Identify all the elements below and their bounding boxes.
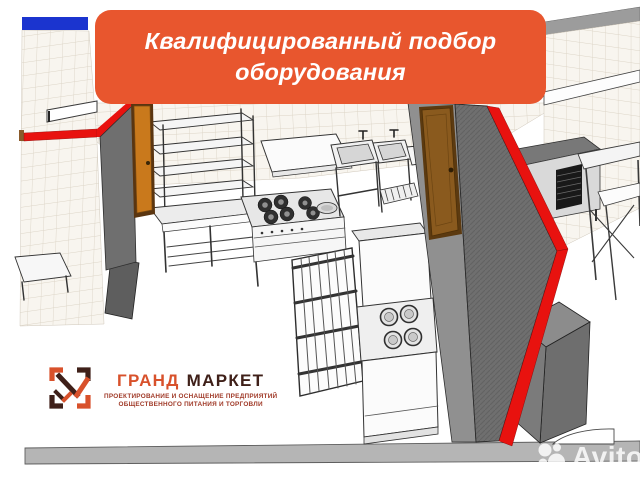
avito-watermark: Avito	[535, 440, 640, 474]
logo-title-part1: ГРАНД	[117, 371, 180, 390]
logo-subtitle: ПРОЕКТИРОВАНИЕ И ОСНАЩЕНИЕ ПРЕДПРИЯТИЙ О…	[104, 393, 277, 409]
grand-market-logo-icon	[46, 364, 94, 412]
logo-subtitle-line2: ОБЩЕСТВЕННОГО ПИТАНИЯ И ТОРГОВЛИ	[104, 401, 277, 409]
avito-watermark-text: Avito	[572, 440, 640, 474]
slat-shelving	[292, 248, 363, 396]
promo-image: Квалифицированный подбор оборудования ГР…	[0, 0, 640, 479]
logo-title-part2: МАРКЕТ	[187, 371, 265, 390]
logo-text: ГРАНДМАРКЕТ ПРОЕКТИРОВАНИЕ И ОСНАЩЕНИЕ П…	[104, 364, 277, 409]
stockpot-range	[352, 223, 438, 444]
blue-stripe	[22, 17, 88, 30]
orange-door	[131, 103, 155, 218]
company-logo: ГРАНДМАРКЕТ ПРОЕКТИРОВАНИЕ И ОСНАЩЕНИЕ П…	[46, 364, 277, 412]
headline-line-1: Квалифицированный подбор	[145, 26, 497, 57]
avito-dots-icon	[535, 441, 569, 473]
headline-banner: Квалифицированный подбор оборудования	[95, 10, 546, 104]
logo-subtitle-line1: ПРОЕКТИРОВАНИЕ И ОСНАЩЕНИЕ ПРЕДПРИЯТИЙ	[104, 393, 277, 401]
logo-title: ГРАНДМАРКЕТ	[117, 372, 264, 390]
headline-line-2: оборудования	[235, 57, 406, 88]
